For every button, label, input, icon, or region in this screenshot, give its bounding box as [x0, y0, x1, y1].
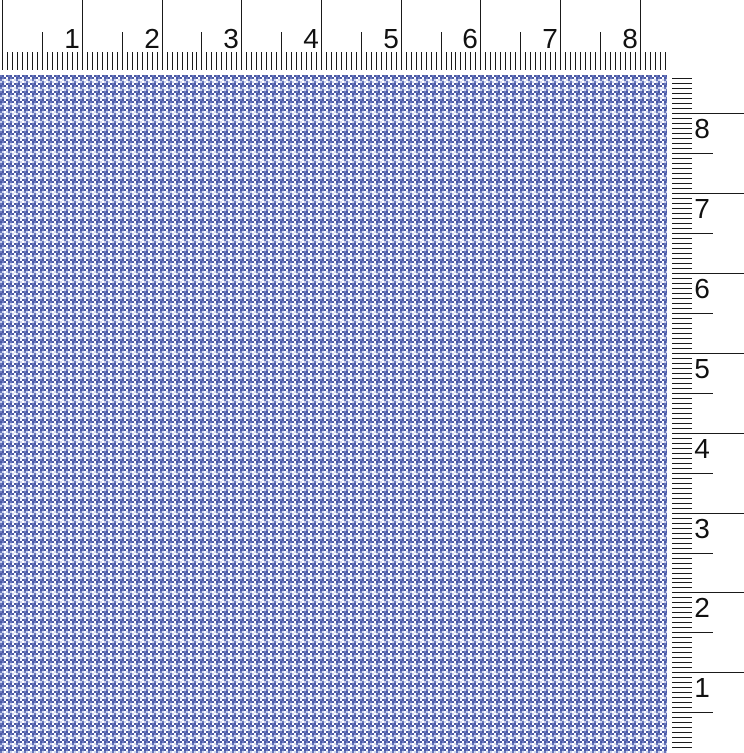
v-ruler-tick	[672, 538, 692, 539]
h-ruler-tick	[381, 52, 382, 70]
v-ruler-tick	[672, 712, 713, 713]
v-ruler-tick	[672, 243, 692, 244]
v-ruler-tick	[672, 248, 692, 249]
h-ruler-tick	[192, 52, 193, 70]
h-ruler-label-5: 5	[383, 25, 399, 53]
v-ruler-tick	[672, 373, 692, 374]
v-ruler-tick	[672, 453, 692, 454]
h-ruler-tick	[7, 52, 8, 70]
v-ruler-tick	[672, 597, 692, 598]
v-ruler-tick	[672, 313, 713, 314]
h-ruler-tick	[555, 52, 556, 70]
h-ruler-tick	[117, 52, 118, 70]
v-ruler-tick	[672, 438, 692, 439]
v-ruler-tick	[672, 238, 692, 239]
h-ruler-tick	[535, 52, 536, 70]
h-ruler-label-2: 2	[144, 25, 160, 53]
v-ruler-tick	[672, 607, 692, 608]
h-ruler-tick	[147, 52, 148, 70]
v-ruler-label-6: 6	[694, 275, 710, 303]
h-ruler-tick	[167, 52, 168, 70]
v-ruler-tick	[672, 183, 692, 184]
v-ruler-tick	[672, 173, 692, 174]
v-ruler-tick	[672, 617, 692, 618]
v-ruler-tick	[672, 578, 692, 579]
v-ruler-tick	[672, 483, 692, 484]
h-ruler-tick	[391, 52, 392, 70]
h-ruler-tick	[57, 52, 58, 70]
v-ruler-label-1: 1	[694, 674, 710, 702]
v-ruler-tick	[672, 732, 692, 733]
v-ruler-tick	[672, 642, 692, 643]
h-ruler-tick	[505, 52, 506, 70]
h-ruler-tick	[102, 52, 103, 70]
h-ruler-tick	[465, 52, 466, 70]
v-ruler-tick	[672, 508, 692, 509]
v-ruler-tick	[672, 632, 713, 633]
v-ruler-tick	[672, 93, 692, 94]
v-ruler-tick	[672, 108, 692, 109]
h-ruler-tick	[625, 52, 626, 70]
v-ruler-tick	[672, 573, 692, 574]
v-ruler-tick	[672, 178, 692, 179]
v-ruler-tick	[672, 707, 692, 708]
h-ruler-tick	[361, 32, 362, 70]
v-ruler-tick	[672, 78, 692, 79]
v-ruler-tick	[672, 153, 713, 154]
v-ruler-tick	[672, 443, 692, 444]
h-ruler-tick	[490, 52, 491, 70]
h-ruler-tick	[226, 52, 227, 70]
v-ruler-tick	[672, 667, 692, 668]
h-ruler-tick	[291, 52, 292, 70]
v-ruler-tick	[672, 533, 692, 534]
v-ruler-tick	[672, 283, 692, 284]
v-ruler-tick	[672, 368, 692, 369]
v-ruler-tick	[672, 293, 692, 294]
h-ruler-tick	[455, 52, 456, 70]
v-ruler-tick	[672, 218, 692, 219]
h-ruler-tick	[2, 0, 3, 70]
v-ruler-tick	[672, 498, 692, 499]
v-ruler-tick	[672, 558, 692, 559]
h-ruler-tick	[187, 52, 188, 70]
v-ruler-tick	[672, 98, 692, 99]
v-ruler-tick	[672, 433, 744, 434]
h-ruler-tick	[266, 52, 267, 70]
v-ruler-tick	[672, 338, 692, 339]
h-ruler-tick	[525, 52, 526, 70]
h-ruler-tick	[580, 52, 581, 70]
v-ruler-tick	[672, 622, 692, 623]
h-ruler-tick	[600, 32, 601, 70]
v-ruler-tick	[672, 473, 713, 474]
v-ruler-tick	[672, 213, 692, 214]
h-ruler-tick	[221, 52, 222, 70]
v-ruler-tick	[672, 647, 692, 648]
h-ruler-tick	[665, 52, 666, 70]
h-ruler-tick	[92, 52, 93, 70]
v-ruler-tick	[672, 363, 692, 364]
v-ruler-tick	[672, 203, 692, 204]
h-ruler-tick	[52, 52, 53, 70]
h-ruler-tick	[216, 52, 217, 70]
h-ruler-tick	[42, 32, 43, 70]
v-ruler-tick	[672, 323, 692, 324]
v-ruler-tick	[672, 553, 713, 554]
v-ruler-tick	[672, 253, 692, 254]
h-ruler-tick	[515, 52, 516, 70]
v-ruler-tick	[672, 662, 692, 663]
h-ruler-tick	[575, 52, 576, 70]
v-ruler-tick	[672, 208, 692, 209]
h-ruler-tick	[37, 52, 38, 70]
v-ruler-tick	[672, 548, 692, 549]
h-ruler-tick	[321, 0, 322, 70]
h-ruler-tick	[406, 52, 407, 70]
h-ruler-tick	[396, 52, 397, 70]
v-ruler-tick	[672, 413, 692, 414]
v-ruler-tick	[672, 602, 692, 603]
h-ruler-tick	[62, 52, 63, 70]
v-ruler-tick	[672, 672, 744, 673]
h-ruler-label-1: 1	[64, 25, 80, 53]
v-ruler-tick	[672, 717, 692, 718]
h-ruler-tick	[336, 52, 337, 70]
h-ruler-tick	[436, 52, 437, 70]
v-ruler-tick	[672, 722, 692, 723]
v-ruler-tick	[672, 83, 692, 84]
v-ruler-tick	[672, 523, 692, 524]
v-ruler-tick	[672, 493, 692, 494]
v-ruler-tick	[672, 163, 692, 164]
v-ruler-tick	[672, 288, 692, 289]
v-ruler-tick	[672, 388, 692, 389]
v-ruler-tick	[672, 528, 692, 529]
h-ruler-tick	[660, 52, 661, 70]
v-ruler-label-8: 8	[694, 115, 710, 143]
v-ruler-tick	[672, 128, 692, 129]
v-ruler-tick	[672, 228, 692, 229]
h-ruler-tick	[530, 52, 531, 70]
v-ruler-tick	[672, 742, 692, 743]
h-ruler-tick	[177, 52, 178, 70]
h-ruler-tick	[371, 52, 372, 70]
fabric-simulation-window: 12345678 87654321	[0, 0, 744, 753]
v-ruler-tick	[672, 563, 692, 564]
h-ruler-tick	[326, 52, 327, 70]
h-ruler-tick	[231, 52, 232, 70]
v-ruler-tick	[672, 383, 692, 384]
v-ruler-tick	[672, 168, 692, 169]
v-ruler-tick	[672, 747, 692, 748]
h-ruler-tick	[67, 52, 68, 70]
h-ruler-tick	[152, 52, 153, 70]
h-ruler-tick	[451, 52, 452, 70]
v-ruler-tick	[672, 428, 692, 429]
v-ruler-label-3: 3	[694, 515, 710, 543]
h-ruler-tick	[301, 52, 302, 70]
h-ruler-tick	[97, 52, 98, 70]
v-ruler-tick	[672, 133, 692, 134]
v-ruler-tick	[672, 458, 692, 459]
fabric-pattern	[0, 75, 667, 753]
v-ruler-tick	[672, 318, 692, 319]
v-ruler-label-5: 5	[694, 355, 710, 383]
h-ruler-tick	[565, 52, 566, 70]
v-ruler-tick	[672, 273, 744, 274]
h-ruler-tick	[640, 0, 641, 70]
h-ruler-tick	[441, 32, 442, 70]
v-ruler-tick	[672, 697, 692, 698]
h-ruler-tick	[87, 52, 88, 70]
v-ruler-tick	[672, 103, 692, 104]
h-ruler-tick	[276, 52, 277, 70]
h-ruler-tick	[306, 52, 307, 70]
v-ruler-tick	[672, 687, 692, 688]
h-ruler-tick	[142, 52, 143, 70]
h-ruler-tick	[12, 52, 13, 70]
v-ruler-tick	[672, 612, 692, 613]
h-ruler-tick	[236, 52, 237, 70]
v-ruler-tick	[672, 677, 692, 678]
v-ruler-tick	[672, 503, 692, 504]
h-ruler-tick	[32, 52, 33, 70]
h-ruler-tick	[426, 52, 427, 70]
v-ruler-tick	[672, 657, 692, 658]
h-ruler-label-7: 7	[542, 25, 558, 53]
h-ruler-tick	[132, 52, 133, 70]
v-ruler-tick	[672, 592, 744, 593]
v-ruler-tick	[672, 333, 692, 334]
v-ruler-tick	[672, 403, 692, 404]
v-ruler-tick	[672, 258, 692, 259]
h-ruler-tick	[316, 52, 317, 70]
h-ruler-tick	[112, 52, 113, 70]
v-ruler-tick	[672, 198, 692, 199]
v-ruler-tick	[672, 488, 692, 489]
v-ruler-tick	[672, 652, 692, 653]
h-ruler-tick	[206, 52, 207, 70]
h-ruler-tick	[137, 52, 138, 70]
v-ruler-label-2: 2	[694, 594, 710, 622]
h-ruler-tick	[341, 52, 342, 70]
v-ruler-label-7: 7	[694, 195, 710, 223]
v-ruler-tick	[672, 463, 692, 464]
h-ruler-tick	[560, 0, 561, 70]
h-ruler-tick	[386, 52, 387, 70]
h-ruler-tick	[635, 52, 636, 70]
h-ruler-tick	[17, 52, 18, 70]
h-ruler-tick	[480, 0, 481, 70]
h-ruler-tick	[127, 52, 128, 70]
h-ruler-tick	[182, 52, 183, 70]
h-ruler-tick	[615, 52, 616, 70]
h-ruler-tick	[366, 52, 367, 70]
h-ruler-label-8: 8	[622, 25, 638, 53]
v-ruler-tick	[672, 518, 692, 519]
v-ruler-tick	[672, 423, 692, 424]
v-ruler-tick	[672, 268, 692, 269]
h-ruler-tick	[122, 32, 123, 70]
v-ruler-tick	[672, 113, 744, 114]
h-ruler-tick	[605, 52, 606, 70]
h-ruler-tick	[77, 52, 78, 70]
v-ruler-tick	[672, 393, 713, 394]
h-ruler-label-3: 3	[223, 25, 239, 53]
v-ruler-tick	[672, 513, 744, 514]
v-ruler-tick	[672, 158, 692, 159]
v-ruler-tick	[672, 298, 692, 299]
h-ruler-tick	[47, 52, 48, 70]
v-ruler-tick	[672, 308, 692, 309]
h-ruler-tick	[495, 52, 496, 70]
h-ruler-tick	[356, 52, 357, 70]
h-ruler-tick	[570, 52, 571, 70]
h-ruler-tick	[311, 52, 312, 70]
v-ruler-tick	[672, 233, 713, 234]
v-ruler-tick	[672, 682, 692, 683]
h-ruler-tick	[346, 52, 347, 70]
v-ruler-tick	[672, 408, 692, 409]
v-ruler-tick	[672, 702, 692, 703]
v-ruler-tick	[672, 358, 692, 359]
h-ruler-tick	[470, 52, 471, 70]
h-ruler-tick	[655, 52, 656, 70]
h-ruler-tick	[246, 52, 247, 70]
v-ruler-tick	[672, 692, 692, 693]
v-ruler-tick	[672, 543, 692, 544]
h-ruler-tick	[401, 0, 402, 70]
v-ruler-tick	[672, 637, 692, 638]
h-ruler-tick	[22, 52, 23, 70]
v-ruler-tick	[672, 727, 692, 728]
v-ruler-tick	[672, 737, 692, 738]
h-ruler-tick	[610, 52, 611, 70]
h-ruler-tick	[241, 0, 242, 70]
v-ruler-tick	[672, 348, 692, 349]
h-ruler-tick	[211, 52, 212, 70]
h-ruler-tick	[27, 52, 28, 70]
h-ruler-tick	[446, 52, 447, 70]
v-ruler-label-4: 4	[694, 435, 710, 463]
v-ruler-tick	[672, 343, 692, 344]
v-ruler-tick	[672, 143, 692, 144]
h-ruler-tick	[460, 52, 461, 70]
h-ruler-tick	[201, 32, 202, 70]
h-ruler-tick	[196, 52, 197, 70]
v-ruler-tick	[672, 448, 692, 449]
h-ruler-tick	[107, 52, 108, 70]
h-ruler-tick	[645, 52, 646, 70]
v-ruler-tick	[672, 223, 692, 224]
v-ruler-tick	[672, 587, 692, 588]
h-ruler-tick	[475, 52, 476, 70]
h-ruler-tick	[500, 52, 501, 70]
v-ruler-tick	[672, 118, 692, 119]
v-ruler-tick	[672, 582, 692, 583]
h-ruler-tick	[351, 52, 352, 70]
v-ruler-tick	[672, 278, 692, 279]
v-ruler-tick	[672, 88, 692, 89]
v-ruler-tick	[672, 188, 692, 189]
h-ruler-label-4: 4	[303, 25, 319, 53]
h-ruler-tick	[331, 52, 332, 70]
h-ruler-tick	[585, 52, 586, 70]
fabric-swatch-canvas[interactable]	[0, 75, 667, 753]
v-ruler-tick	[672, 353, 744, 354]
v-ruler-tick	[672, 148, 692, 149]
h-ruler-tick	[296, 52, 297, 70]
h-ruler-tick	[261, 52, 262, 70]
h-ruler-tick	[590, 52, 591, 70]
h-ruler-tick	[376, 52, 377, 70]
h-ruler-label-6: 6	[462, 25, 478, 53]
h-ruler-tick	[520, 32, 521, 70]
v-ruler-tick	[672, 378, 692, 379]
v-ruler-tick	[672, 468, 692, 469]
h-ruler-tick	[595, 52, 596, 70]
v-ruler-tick	[672, 303, 692, 304]
h-ruler-tick	[630, 52, 631, 70]
v-ruler-tick	[672, 478, 692, 479]
h-ruler-tick	[271, 52, 272, 70]
v-ruler-tick	[672, 418, 692, 419]
h-ruler-tick	[172, 52, 173, 70]
h-ruler-tick	[431, 52, 432, 70]
h-ruler-tick	[650, 52, 651, 70]
h-ruler-tick	[72, 52, 73, 70]
h-ruler-tick	[421, 52, 422, 70]
v-ruler-tick	[672, 398, 692, 399]
h-ruler-tick	[256, 52, 257, 70]
h-ruler-tick	[550, 52, 551, 70]
v-ruler-tick	[672, 138, 692, 139]
v-ruler-tick	[672, 263, 692, 264]
h-ruler-tick	[411, 52, 412, 70]
h-ruler-tick	[281, 32, 282, 70]
h-ruler-tick	[157, 52, 158, 70]
v-ruler-tick	[672, 193, 744, 194]
h-ruler-tick	[251, 52, 252, 70]
h-ruler-tick	[545, 52, 546, 70]
h-ruler-tick	[510, 52, 511, 70]
h-ruler-tick	[162, 0, 163, 70]
h-ruler-tick	[82, 0, 83, 70]
h-ruler-tick	[416, 52, 417, 70]
v-ruler-tick	[672, 568, 692, 569]
v-ruler-tick	[672, 123, 692, 124]
h-ruler-tick	[620, 52, 621, 70]
h-ruler-tick	[485, 52, 486, 70]
h-ruler-tick	[540, 52, 541, 70]
h-ruler-tick	[286, 52, 287, 70]
v-ruler-tick	[672, 328, 692, 329]
v-ruler-tick	[672, 627, 692, 628]
